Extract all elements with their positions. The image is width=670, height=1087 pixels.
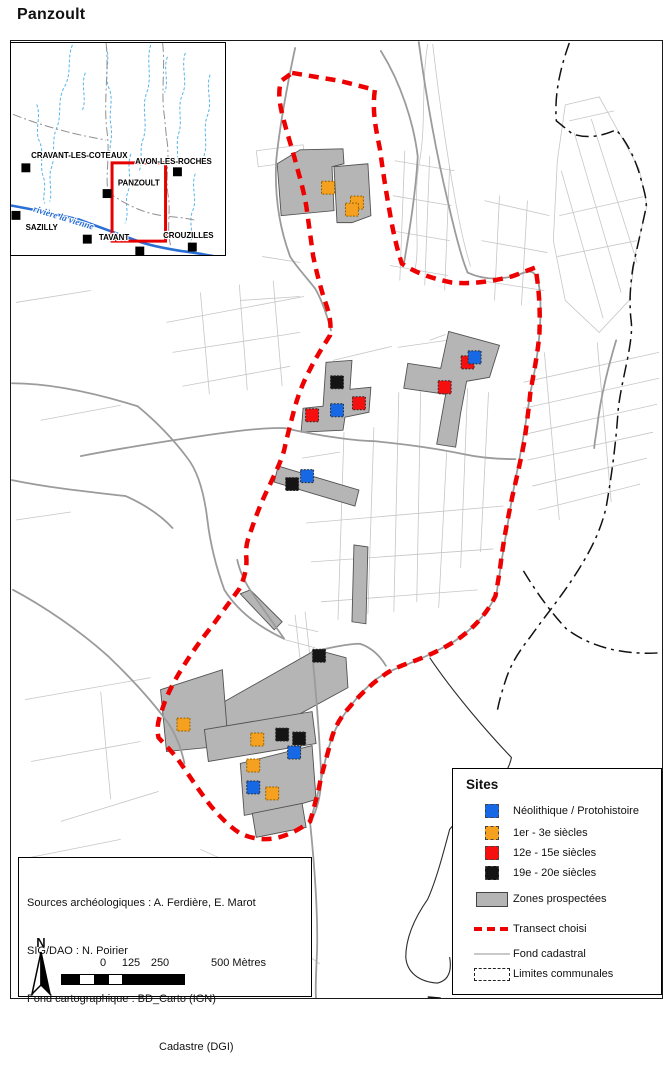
legend-swatch-transect (473, 920, 511, 938)
sources-line: Sources archéologiques : A. Ferdière, E.… (27, 895, 256, 911)
map-path (481, 392, 489, 552)
map-path (333, 346, 392, 360)
legend-swatch-square (473, 824, 511, 842)
town-label: CRAVANT-LES-COTEAUX (31, 151, 128, 160)
site-marker-med (306, 409, 319, 422)
north-arrow-icon (30, 950, 52, 996)
map-path (419, 42, 468, 273)
map-path (173, 332, 301, 352)
map-path (381, 51, 418, 265)
map-path (310, 272, 540, 823)
map-path (321, 590, 478, 602)
scale-label: 250 (151, 955, 169, 971)
town-square (173, 167, 182, 176)
legend-swatch-square (473, 802, 511, 820)
scale-label: 500 Mètres (211, 955, 266, 971)
map-path (167, 138, 171, 245)
site-marker-mod (293, 732, 306, 745)
map-path (391, 231, 450, 241)
legend-label: Transect choisi (513, 923, 587, 935)
legend-swatch-square (473, 844, 511, 862)
site-marker-neo (468, 351, 481, 364)
map-path (445, 166, 450, 291)
scale-segment (109, 975, 122, 984)
scale-segment (62, 975, 80, 984)
map-path (82, 73, 85, 111)
swatch-icon (474, 927, 510, 932)
legend-swatch-dashdot (473, 965, 511, 983)
map-path (295, 615, 300, 660)
town-square (12, 211, 21, 220)
map-path (200, 292, 209, 394)
legend-label: 19e - 20e siècles (513, 867, 596, 879)
map-path (31, 742, 141, 762)
map-path (101, 692, 111, 800)
site-marker-med (438, 381, 451, 394)
map-path (430, 334, 446, 340)
site-marker-ant (345, 203, 358, 216)
map-path (523, 571, 661, 653)
map-path (394, 392, 399, 612)
map-path (544, 352, 559, 520)
scale-bar: 0125250500 Mètres (61, 955, 301, 991)
site-marker-ant (251, 733, 264, 746)
legend-item: Fond cadastral (453, 945, 661, 963)
legend-label: Zones prospectées (513, 893, 607, 905)
town-square (135, 247, 144, 255)
map-path (176, 53, 185, 166)
map-path (41, 405, 121, 420)
map-path (425, 156, 430, 286)
swatch-icon (485, 846, 499, 860)
inset-canvas: CRAVANT-LES-COTEAUXAVON-LES-ROCHESPANZOU… (11, 43, 225, 255)
site-marker-neo (301, 470, 314, 483)
sources-line: Fond cartographique : BD_Carto (IGN) (27, 991, 256, 1007)
map-path (417, 388, 421, 602)
map-path (538, 484, 640, 510)
scale-bar-labels: 0125250500 Mètres (61, 955, 301, 969)
map-path (527, 432, 653, 460)
map-path (482, 241, 548, 253)
legend-swatch-line (473, 945, 511, 963)
map-path (182, 366, 290, 386)
location-inset-map: CRAVANT-LES-COTEAUXAVON-LES-ROCHESPANZOU… (10, 42, 226, 256)
scale-segment (122, 975, 184, 984)
site-marker-ant (322, 181, 335, 194)
map-path (428, 997, 546, 998)
study-area-rectangle (112, 163, 165, 241)
legend-item: Néolithique / Protohistoire (453, 802, 661, 820)
scale-bar-segments (61, 974, 185, 985)
swatch-icon (476, 892, 508, 907)
map-path (285, 640, 315, 648)
site-marker-ant (266, 787, 279, 800)
site-marker-neo (288, 746, 301, 759)
map-path (439, 452, 447, 608)
swatch-icon (485, 804, 499, 818)
legend-label: 12e - 15e siècles (513, 847, 596, 859)
map-path (557, 241, 637, 257)
map-path (521, 201, 527, 306)
swatch-icon (474, 953, 510, 955)
site-marker-neo (247, 781, 260, 794)
legend-item: Limites communales (453, 965, 661, 983)
map-path (306, 506, 503, 523)
site-marker-ant (177, 718, 190, 731)
legend-label: Limites communales (513, 968, 613, 980)
scale-label: 125 (122, 955, 140, 971)
map-path (167, 296, 305, 322)
map-path (107, 192, 195, 221)
map-path (498, 43, 647, 710)
legend-swatch-square (473, 864, 511, 882)
prospected-zone (352, 545, 368, 624)
site-marker-med (352, 397, 365, 410)
legend-label: Néolithique / Protohistoire (513, 805, 639, 817)
north-arrow: N (27, 936, 55, 1001)
legend-item: Zones prospectées (453, 890, 661, 908)
map-path (13, 114, 72, 133)
map-path (16, 512, 71, 520)
map-path (485, 201, 550, 216)
map-path (305, 612, 310, 658)
map-path (12, 383, 284, 638)
map-path (165, 57, 168, 93)
town-label: PANZOULT (118, 179, 160, 188)
site-marker-mod (313, 649, 326, 662)
map-path (559, 197, 643, 216)
town-label: SAZILLY (26, 223, 59, 232)
map-path (61, 791, 159, 821)
map-path (163, 43, 167, 138)
scale-segment (94, 975, 109, 984)
prospected-zone (240, 590, 282, 630)
map-path (523, 378, 659, 408)
town-label: CROUZILLES (163, 231, 214, 240)
map-path (495, 196, 500, 301)
legend-item: 1er - 3e siècles (453, 824, 661, 842)
map-path (273, 280, 282, 386)
map-path (393, 196, 452, 206)
swatch-icon (474, 968, 510, 981)
site-marker-mod (286, 478, 299, 491)
legend: Sites Néolithique / Protohistoire1er - 3… (452, 768, 662, 995)
map-path (368, 427, 374, 614)
map-path (72, 133, 106, 140)
legend-swatch-zone (473, 890, 511, 908)
site-marker-neo (331, 404, 344, 417)
map-path (240, 296, 300, 300)
scale-label: 0 (100, 955, 106, 971)
legend-item: 12e - 15e siècles (453, 844, 661, 862)
north-label: N (27, 936, 55, 949)
town-square (188, 243, 197, 252)
map-path (525, 404, 657, 434)
legend-title: Sites (466, 777, 498, 792)
map-path (16, 290, 91, 302)
map-path (561, 171, 603, 319)
map-path (302, 452, 340, 458)
map-path (203, 75, 210, 158)
town-label: AVON-LES-ROCHES (135, 157, 212, 166)
town-square (103, 189, 112, 198)
map-path (106, 43, 108, 192)
scale-segment (80, 975, 94, 984)
town-label: TAVANT (99, 233, 129, 242)
map-path (338, 432, 344, 620)
map-path (553, 97, 647, 333)
map-path (574, 133, 621, 293)
map-path (50, 45, 73, 202)
map-path (125, 154, 131, 223)
map-path (480, 280, 545, 290)
legend-label: Fond cadastral (513, 948, 586, 960)
map-path (591, 119, 637, 263)
sources-box: Sources archéologiques : A. Ferdière, E.… (18, 857, 312, 997)
swatch-icon (485, 826, 499, 840)
town-square (21, 163, 30, 172)
site-marker-ant (247, 759, 260, 772)
map-path (12, 480, 173, 528)
legend-label: 1er - 3e siècles (513, 827, 588, 839)
site-marker-mod (331, 376, 344, 389)
legend-item: Transect choisi (453, 920, 661, 938)
map-path (139, 45, 151, 172)
map-path (461, 388, 468, 568)
map-path (288, 625, 318, 632)
swatch-icon (485, 866, 499, 880)
town-square (83, 235, 92, 244)
site-marker-mod (276, 728, 289, 741)
map-path (523, 352, 659, 382)
map-path (532, 458, 647, 486)
map-path (311, 549, 493, 562)
legend-item: 19e - 20e siècles (453, 864, 661, 882)
page-title: Panzoult (17, 6, 85, 24)
sources-line: Cadastre (DGI) (159, 1039, 256, 1055)
